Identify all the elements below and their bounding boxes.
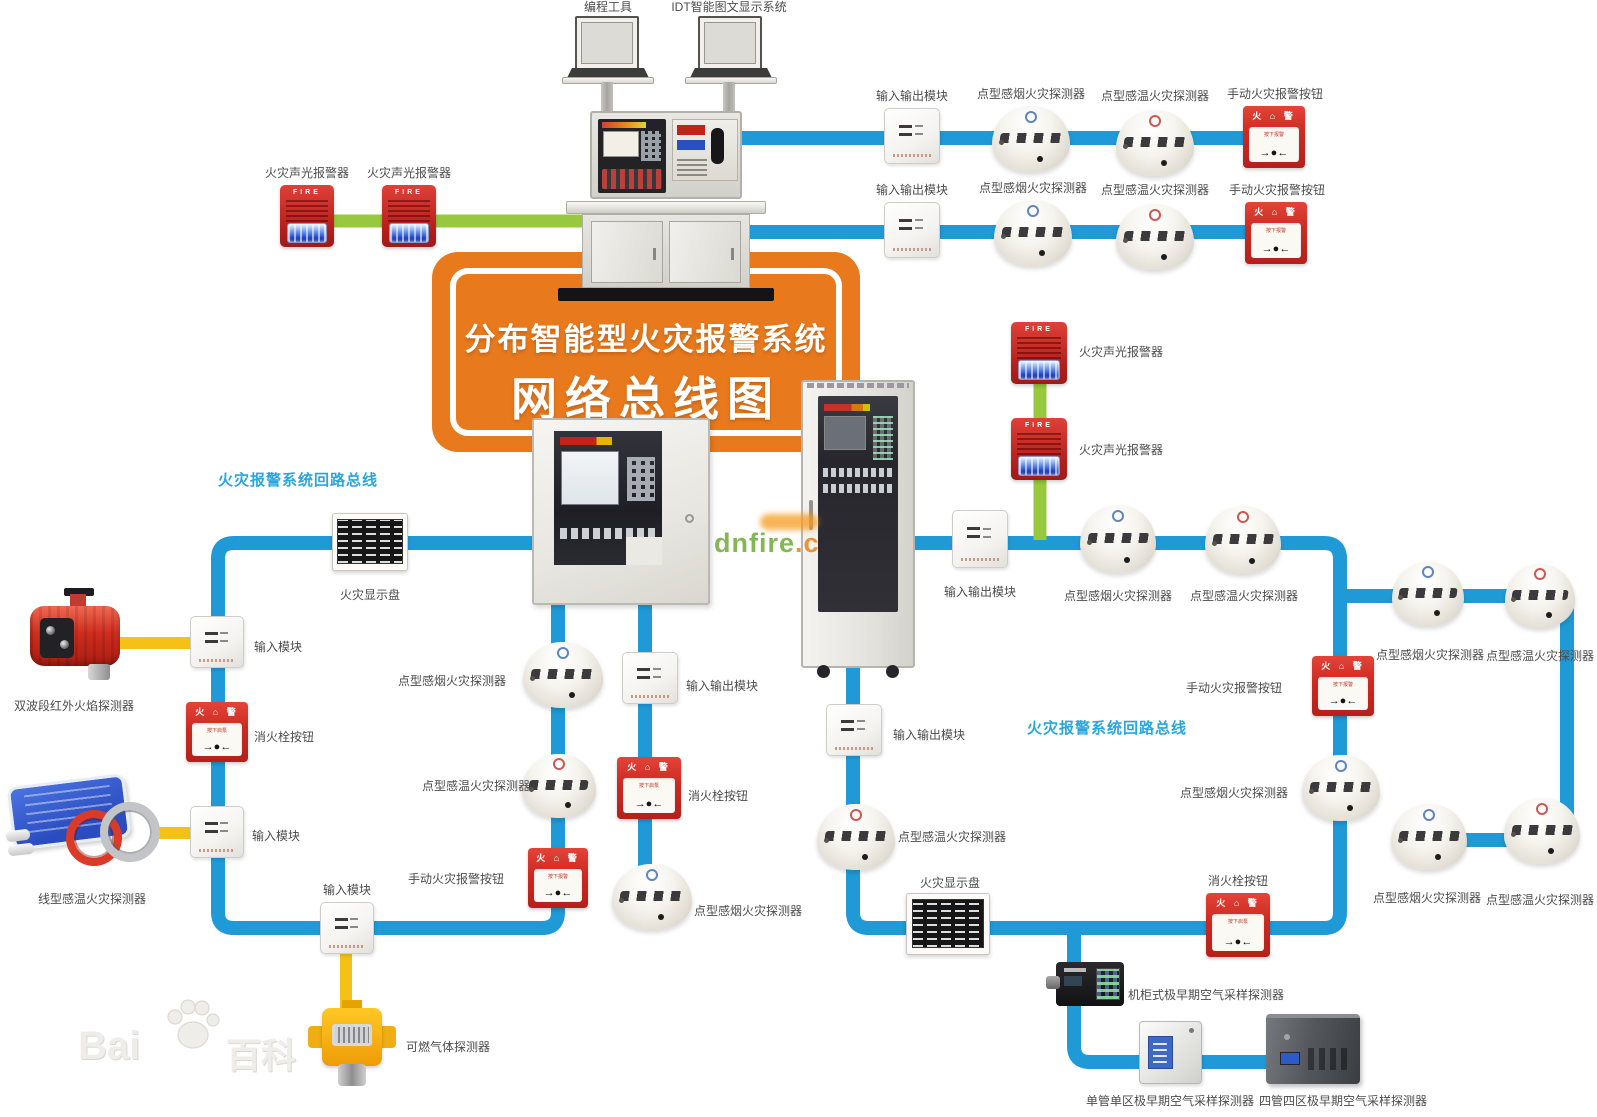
lh-g2-part bbox=[7, 842, 34, 856]
input-module bbox=[190, 806, 244, 858]
s-strobe-part bbox=[1018, 360, 1060, 380]
rk-c1-part bbox=[817, 665, 830, 678]
m-strip-part bbox=[199, 659, 236, 662]
m-strip-part bbox=[835, 747, 873, 750]
heat-detector-label: 点型感温火灾探测器 bbox=[422, 780, 532, 793]
input-module bbox=[190, 616, 244, 668]
smoke-detector bbox=[992, 106, 1070, 172]
ab-screen-part bbox=[1064, 976, 1082, 986]
manual-call-point-label: 手动火灾报警按钮 bbox=[1219, 88, 1331, 101]
heat-detector-label: 点型感温火灾探测器 bbox=[898, 831, 1010, 844]
dome-vents-part bbox=[530, 669, 595, 679]
dome-vents-part bbox=[619, 891, 684, 901]
linear-heat-detector-label: 线型感温火灾探测器 bbox=[38, 893, 170, 906]
con-screen-part bbox=[603, 131, 639, 157]
ab-cyl-part bbox=[1046, 976, 1060, 989]
m-leds-part bbox=[899, 219, 912, 231]
heat-detector-label: 点型感温火灾探测器 bbox=[1188, 590, 1300, 603]
sounder-strobe: FIRE bbox=[382, 185, 436, 247]
ab-line-part bbox=[1064, 968, 1086, 972]
label-right-loop-bus-label: 火灾报警系统回路总线 bbox=[1027, 722, 1217, 735]
asd-single-pipe-single-zone bbox=[1139, 1021, 1202, 1084]
c-top-part: 火 ⌂ 警 bbox=[617, 761, 681, 773]
con-phone-part bbox=[711, 128, 724, 164]
fire-alarm-control-panel bbox=[532, 418, 710, 605]
c-arrows-part: →●← bbox=[528, 888, 588, 899]
manual-call-point: 火 ⌂ 警按下报警→●← bbox=[528, 848, 588, 908]
label-programming-tool-label: 编程工具 bbox=[566, 1, 650, 14]
ads-part bbox=[1280, 1052, 1300, 1065]
lp-inner-part bbox=[581, 22, 633, 64]
fire-display-panel bbox=[906, 893, 990, 955]
m-leds-part bbox=[967, 527, 980, 539]
asd-cabinet-type bbox=[1046, 960, 1124, 1012]
adv-part bbox=[1308, 1048, 1352, 1070]
asd-four-pipe-four-zone-label: 四管四区极早期空气采样探测器 bbox=[1250, 1095, 1436, 1108]
m-strip-part bbox=[329, 945, 366, 948]
smoke-detector-label: 点型感烟火灾探测器 bbox=[398, 675, 508, 688]
smoke-detector-label: 点型感烟火灾探测器 bbox=[1376, 649, 1484, 662]
s-ribs-part bbox=[1017, 433, 1061, 455]
c-mini-part: 按下启泵 bbox=[617, 782, 681, 789]
gas-window-part bbox=[332, 1024, 372, 1046]
smoke-detector-label: 点型感烟火灾探测器 bbox=[1176, 787, 1288, 800]
io-module-label: 输入输出模块 bbox=[686, 680, 778, 693]
dome-vents-part bbox=[1309, 782, 1373, 792]
rk-leds-part bbox=[873, 416, 893, 460]
dome-vents-part bbox=[1212, 534, 1274, 544]
dome-vents-part bbox=[1398, 831, 1460, 841]
manual-call-point: 火 ⌂ 警按下报警→●← bbox=[1245, 202, 1307, 264]
dome-vents-part bbox=[1399, 588, 1458, 598]
sounder-strobe-label: 火灾声光报警器 bbox=[1079, 444, 1173, 457]
wpscr-part bbox=[561, 451, 619, 505]
smoke-detector bbox=[1080, 505, 1156, 573]
rk-strip-part bbox=[824, 404, 870, 411]
asd-four-pipe-four-zone bbox=[1266, 1014, 1360, 1084]
c-arrows-part: →●← bbox=[1312, 696, 1374, 707]
m-leds2-part bbox=[350, 918, 358, 930]
asd-cabinet-type-label: 机柜式极早期空气采样探测器 bbox=[1128, 989, 1300, 1002]
m-leds-part bbox=[205, 822, 218, 834]
manual-call-point-label: 手动火灾报警按钮 bbox=[1170, 682, 1282, 695]
rk-row rk-row2-part bbox=[823, 484, 893, 493]
c-top-part: 火 ⌂ 警 bbox=[1312, 660, 1374, 672]
awd-part bbox=[1189, 1028, 1194, 1033]
manual-call-point: 火 ⌂ 警按下报警→●← bbox=[1312, 656, 1374, 716]
wps1-part bbox=[560, 437, 612, 445]
heat-detector bbox=[1116, 110, 1194, 176]
hydrant-button: 火 ⌂ 警按下启泵→●← bbox=[1206, 893, 1270, 957]
dome-dot-part bbox=[1124, 557, 1130, 563]
c-top-part: 火 ⌂ 警 bbox=[528, 852, 588, 864]
c-arrows-part: →●← bbox=[1243, 148, 1305, 159]
smoke-detector-label: 点型感烟火灾探测器 bbox=[1372, 892, 1482, 905]
con-base-part bbox=[582, 214, 750, 288]
m-leds-part bbox=[205, 632, 218, 644]
dome-logo-part bbox=[1536, 803, 1548, 815]
con-blu-part bbox=[677, 140, 705, 150]
m-leds2-part bbox=[915, 125, 923, 137]
hydrant-button-label: 消火栓按钮 bbox=[254, 731, 330, 744]
con-door con-d2-part bbox=[669, 221, 741, 283]
gas-detector-label: 可燃气体探测器 bbox=[406, 1041, 506, 1054]
gas-bottom-part bbox=[338, 1064, 366, 1086]
io-module-label: 输入输出模块 bbox=[924, 586, 1036, 599]
s-ribs-part bbox=[388, 200, 430, 222]
dome-vents-part bbox=[999, 133, 1063, 143]
smoke-detector bbox=[1392, 562, 1464, 626]
hydrant-button-label: 消火栓按钮 bbox=[1200, 875, 1276, 888]
io-module-label: 输入输出模块 bbox=[893, 729, 985, 742]
gas-detector bbox=[306, 1000, 398, 1086]
f-eye1-part bbox=[46, 626, 55, 635]
dome-logo-part bbox=[1149, 115, 1161, 127]
con-head-part bbox=[590, 111, 742, 199]
s-strobe-part bbox=[389, 223, 429, 243]
c-mini-part: 按下报警 bbox=[528, 873, 588, 880]
control-console bbox=[566, 105, 766, 301]
heat-detector bbox=[1504, 798, 1580, 864]
aws-part bbox=[1148, 1036, 1173, 1069]
io-module bbox=[826, 704, 882, 756]
hydrant-button: 火 ⌂ 警按下启泵→●← bbox=[186, 702, 248, 762]
dome-vents-part bbox=[1123, 137, 1187, 147]
con-right-part bbox=[672, 119, 738, 181]
c-mini-part: 按下启泵 bbox=[1206, 918, 1270, 925]
c-mini-part: 按下启泵 bbox=[186, 727, 248, 734]
heat-detector bbox=[1116, 204, 1194, 270]
dome-logo-part bbox=[850, 809, 862, 821]
dome-logo-part bbox=[557, 647, 569, 659]
rk-top-part bbox=[807, 383, 909, 388]
con-left-part bbox=[598, 119, 666, 193]
c-arrows-part: →●← bbox=[1206, 937, 1270, 948]
linear-heat-detector bbox=[10, 780, 162, 878]
s-ribs-part bbox=[286, 200, 328, 222]
heat-detector-label: 点型感温火灾探测器 bbox=[1486, 650, 1594, 663]
c-top-part: 火 ⌂ 警 bbox=[186, 706, 248, 718]
m-strip-part bbox=[893, 248, 931, 251]
c-arrows-part: →●← bbox=[617, 799, 681, 810]
ab-pad-part bbox=[1096, 968, 1120, 1000]
asd-single-pipe-single-zone-label: 单管单区极早期空气采样探测器 bbox=[1080, 1095, 1260, 1108]
rk-c2-part bbox=[886, 665, 899, 678]
io-module bbox=[884, 202, 940, 258]
dome-logo-part bbox=[1025, 111, 1037, 123]
io-module bbox=[952, 510, 1008, 568]
c-top-part: 火 ⌂ 警 bbox=[1206, 897, 1270, 909]
io-module-label: 输入输出模块 bbox=[856, 90, 968, 103]
fire-display-panel-label: 火灾显示盘 bbox=[334, 589, 406, 602]
dome-vents-part bbox=[529, 780, 590, 790]
con-grille-part bbox=[677, 158, 707, 176]
m-strip-part bbox=[961, 558, 999, 561]
heat-detector bbox=[1505, 564, 1575, 628]
smoke-detector bbox=[1302, 755, 1380, 821]
sounder-strobe-label: 火灾声光报警器 bbox=[1079, 346, 1173, 359]
lp-inner-part bbox=[704, 22, 756, 64]
dome-vents-part bbox=[1511, 825, 1573, 835]
dps-part bbox=[912, 899, 984, 947]
con-keys-part bbox=[641, 131, 661, 161]
diagram-stage: 分布智能型火灾报警系统 网络总线图 编程工具IDT智能图文显示系统FIRE火灾声… bbox=[0, 0, 1597, 1117]
m-leds2-part bbox=[220, 632, 228, 644]
con-door-part bbox=[591, 221, 663, 283]
con-lip-part bbox=[566, 201, 766, 214]
wpk-part bbox=[627, 457, 655, 501]
m-leds-part bbox=[335, 918, 348, 930]
m-leds2-part bbox=[857, 720, 865, 732]
dome-logo-part bbox=[1237, 511, 1249, 523]
smoke-detector-label: 点型感烟火灾探测器 bbox=[1062, 590, 1174, 603]
smoke-detector-label: 点型感烟火灾探测器 bbox=[978, 182, 1088, 195]
dome-logo-part bbox=[1335, 760, 1347, 772]
m-leds2-part bbox=[915, 219, 923, 231]
c-arrows-part: →●← bbox=[186, 742, 248, 753]
smoke-detector bbox=[994, 200, 1072, 266]
input-module-label: 输入模块 bbox=[252, 830, 316, 843]
manual-call-point: 火 ⌂ 警按下报警→●← bbox=[1243, 106, 1305, 168]
wpcut-part bbox=[626, 537, 662, 565]
c-arrows-part: →●← bbox=[1245, 244, 1307, 255]
con-plinth-part bbox=[558, 288, 774, 301]
f-eye2-part bbox=[60, 640, 69, 649]
sounder-strobe-label: 火灾声光报警器 bbox=[260, 167, 354, 180]
label-idt-display-system-label: IDT智能图文显示系统 bbox=[662, 1, 796, 14]
dome-vents-part bbox=[1001, 227, 1065, 237]
dome-vents-part bbox=[1511, 590, 1568, 600]
heat-detector-label: 点型感温火灾探测器 bbox=[1100, 90, 1210, 103]
s-fire-part: FIRE bbox=[280, 189, 334, 196]
dome-dot-part bbox=[1249, 558, 1255, 564]
m-leds2-part bbox=[653, 668, 661, 680]
input-module-label: 输入模块 bbox=[316, 884, 378, 897]
smoke-detector bbox=[523, 642, 603, 708]
io-module bbox=[622, 652, 678, 704]
s-fire-part: FIRE bbox=[1011, 326, 1067, 333]
heat-detector-label: 点型感温火灾探测器 bbox=[1485, 894, 1595, 907]
con-red-part bbox=[677, 125, 705, 135]
input-module bbox=[320, 902, 374, 954]
smoke-detector bbox=[1391, 804, 1467, 870]
label-left-loop-bus-label: 火灾报警系统回路总线 bbox=[218, 474, 408, 487]
ir-flame-detector bbox=[30, 588, 120, 690]
s-fire-part: FIRE bbox=[382, 189, 436, 196]
heat-detector bbox=[522, 754, 596, 818]
wpf-part bbox=[554, 431, 662, 565]
sounder-strobe: FIRE bbox=[280, 185, 334, 247]
s-fire-part: FIRE bbox=[1011, 422, 1067, 429]
heat-detector bbox=[1205, 506, 1281, 574]
m-strip-part bbox=[199, 849, 236, 852]
s-strobe-part bbox=[287, 223, 327, 243]
ir-flame-detector-label: 双波段红外火焰探测器 bbox=[14, 700, 158, 713]
con-btns-part bbox=[602, 169, 662, 189]
lh-coilg-part bbox=[100, 802, 160, 862]
io-module-label: 输入输出模块 bbox=[856, 184, 968, 197]
c-top-part: 火 ⌂ 警 bbox=[1243, 110, 1305, 122]
con-strip-part bbox=[602, 122, 646, 128]
laptop-idt bbox=[688, 16, 774, 84]
dnfire-watermark: dnfire.c bbox=[714, 512, 854, 570]
sounder-strobe-label: 火灾声光报警器 bbox=[362, 167, 456, 180]
dome-logo-part bbox=[646, 869, 658, 881]
io-module bbox=[884, 108, 940, 164]
m-strip-part bbox=[631, 695, 669, 698]
m-leds2-part bbox=[220, 822, 228, 834]
rk-front-part bbox=[818, 396, 898, 612]
add-part bbox=[1284, 1034, 1290, 1040]
fire-display-panel-label: 火灾显示盘 bbox=[912, 877, 988, 890]
m-leds2-part bbox=[983, 528, 991, 540]
sounder-strobe: FIRE bbox=[1011, 418, 1067, 480]
m-leds-part bbox=[841, 720, 854, 732]
m-strip-part bbox=[893, 154, 931, 157]
input-module-label: 输入模块 bbox=[254, 641, 318, 654]
heat-detector-label: 点型感温火灾探测器 bbox=[1100, 184, 1210, 197]
dnfire-watermark-text: dnfire.c bbox=[714, 528, 820, 559]
laptop-programming bbox=[565, 16, 651, 84]
rk-screen-part bbox=[824, 416, 866, 450]
wplock-part bbox=[685, 514, 694, 523]
s-ribs-part bbox=[1017, 337, 1061, 359]
dps-part bbox=[337, 519, 402, 564]
s-strobe-part bbox=[1018, 456, 1060, 476]
hydrant-button: 火 ⌂ 警按下启泵→●← bbox=[617, 757, 681, 819]
c-mini-part: 按下报警 bbox=[1312, 681, 1374, 688]
c-mini-part: 按下报警 bbox=[1245, 227, 1307, 234]
dome-logo-part bbox=[1149, 209, 1161, 221]
manual-call-point-label: 手动火灾报警按钮 bbox=[408, 873, 518, 886]
sounder-strobe: FIRE bbox=[1011, 322, 1067, 384]
dome-vents-part bbox=[1123, 231, 1187, 241]
c-mini-part: 按下报警 bbox=[1243, 131, 1305, 138]
c-top-part: 火 ⌂ 警 bbox=[1245, 206, 1307, 218]
f-mount-part bbox=[88, 664, 110, 680]
m-leds-part bbox=[899, 125, 912, 137]
manual-call-point-label: 手动火灾报警按钮 bbox=[1221, 184, 1333, 197]
hydrant-button-label: 消火栓按钮 bbox=[688, 790, 764, 803]
m-leds-part bbox=[637, 668, 650, 680]
heat-detector bbox=[817, 804, 895, 870]
rk-row-part bbox=[823, 468, 893, 477]
smoke-detector-label: 点型感烟火灾探测器 bbox=[694, 905, 806, 918]
f-face-part bbox=[40, 618, 74, 658]
dome-vents-part bbox=[824, 831, 888, 841]
dome-logo-part bbox=[1423, 809, 1435, 821]
fire-display-panel bbox=[332, 513, 408, 571]
dome-logo-part bbox=[1027, 205, 1039, 217]
dome-vents-part bbox=[1087, 533, 1149, 543]
dome-logo-part bbox=[1112, 510, 1124, 522]
smoke-detector-label: 点型感烟火灾探测器 bbox=[976, 88, 1086, 101]
smoke-detector bbox=[612, 864, 692, 930]
